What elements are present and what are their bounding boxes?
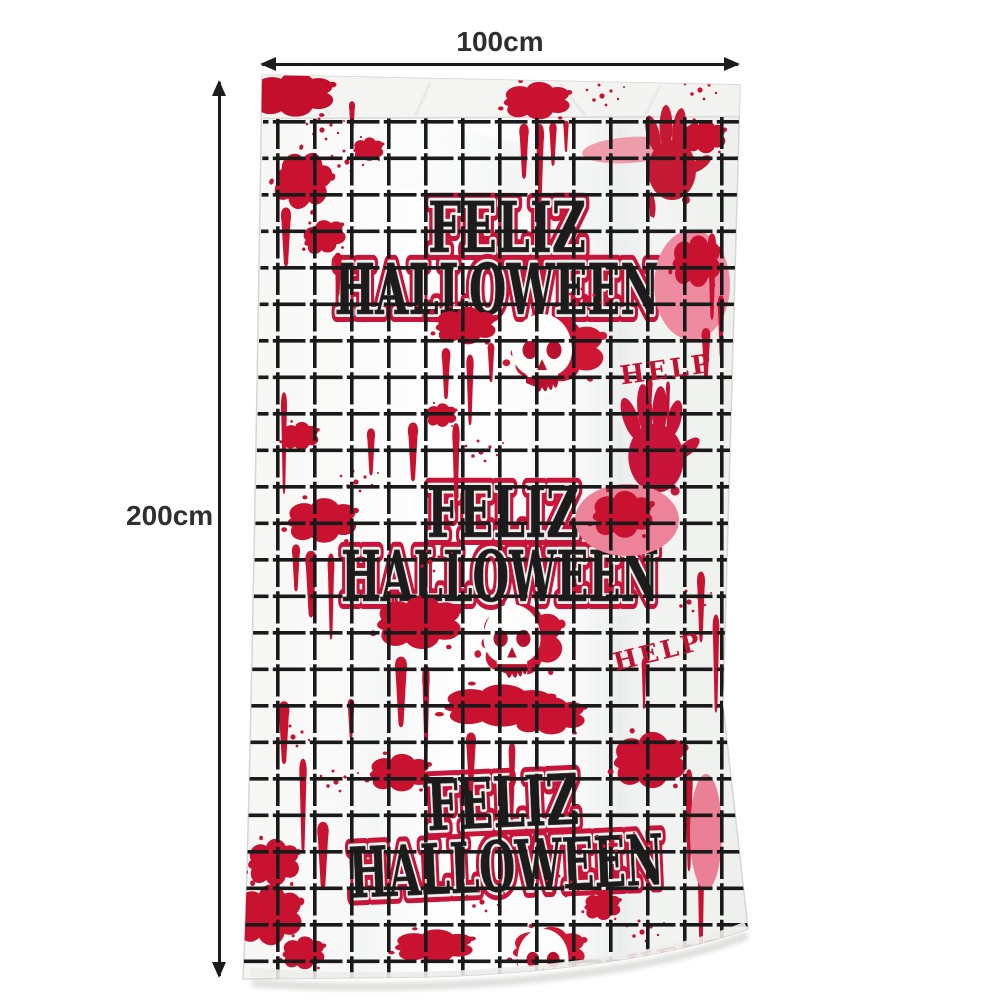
height-dimension-label: 200cm	[126, 502, 210, 530]
product-dimension-figure: 100cm 200cm	[0, 0, 1000, 1000]
grid-pattern-overlay	[243, 117, 748, 979]
width-dimension-line	[262, 63, 738, 66]
height-dimension-line	[218, 82, 221, 976]
width-dimension-label: 100cm	[262, 28, 738, 56]
arrowhead-up-icon	[212, 80, 226, 96]
arrowhead-down-icon	[212, 962, 226, 978]
arrowhead-right-icon	[724, 57, 740, 71]
arrowhead-left-icon	[260, 57, 276, 71]
